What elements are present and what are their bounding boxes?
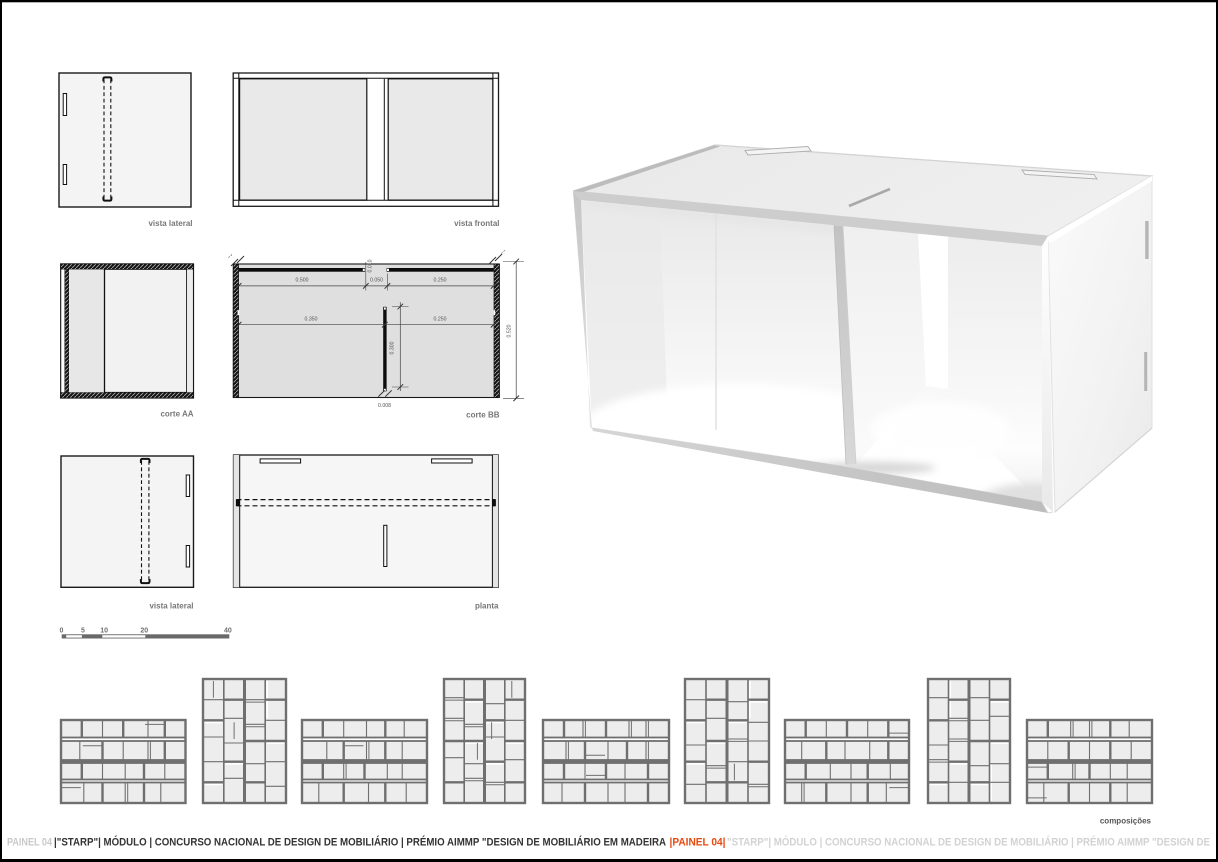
svg-text:"STARP"| MÓDULO | CONCURSO NAC: "STARP"| MÓDULO | CONCURSO NACIONAL DE D… bbox=[727, 836, 1210, 849]
svg-text:0.250: 0.250 bbox=[434, 316, 447, 322]
svg-text:0.050: 0.050 bbox=[370, 278, 383, 284]
svg-text:planta: planta bbox=[475, 602, 499, 611]
svg-text:vista frontal: vista frontal bbox=[454, 219, 499, 228]
svg-text:0.350: 0.350 bbox=[305, 316, 318, 322]
svg-text:0.250: 0.250 bbox=[434, 278, 447, 284]
svg-text:40: 40 bbox=[224, 627, 232, 634]
svg-text:0.520: 0.520 bbox=[507, 324, 513, 337]
svg-text:5: 5 bbox=[81, 627, 85, 634]
svg-text:|PAINEL 04|: |PAINEL 04| bbox=[670, 837, 726, 849]
svg-text:vista lateral: vista lateral bbox=[148, 219, 192, 228]
svg-text:20: 20 bbox=[140, 627, 148, 634]
svg-text:vista lateral: vista lateral bbox=[149, 602, 193, 611]
svg-text:0.010: 0.010 bbox=[368, 259, 374, 272]
svg-text:corte AA: corte AA bbox=[160, 410, 193, 419]
svg-text:0: 0 bbox=[60, 627, 64, 634]
svg-text:0.500: 0.500 bbox=[296, 278, 309, 284]
svg-text:corte BB: corte BB bbox=[466, 411, 500, 420]
svg-text:0.300: 0.300 bbox=[390, 341, 396, 354]
svg-text:|"STARP"| MÓDULO | CONCURSO NA: |"STARP"| MÓDULO | CONCURSO NACIONAL DE … bbox=[54, 836, 666, 849]
svg-text:composições: composições bbox=[1100, 817, 1152, 826]
svg-text:10: 10 bbox=[100, 627, 108, 634]
svg-text:PAINEL 04: PAINEL 04 bbox=[7, 837, 52, 849]
svg-text:0.008: 0.008 bbox=[378, 403, 391, 409]
